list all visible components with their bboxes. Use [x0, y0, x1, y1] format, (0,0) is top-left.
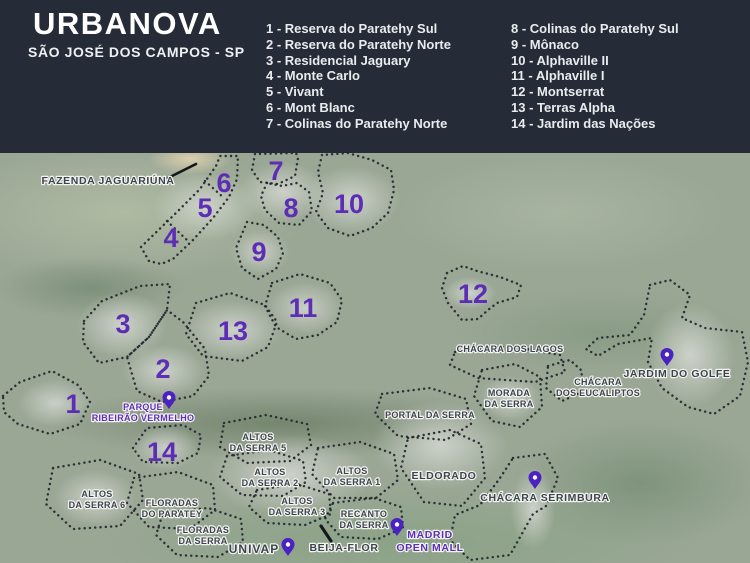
- region-number-9: 9: [251, 237, 266, 267]
- region-number-3: 3: [115, 309, 130, 339]
- label-altos-da-serra-3-line1: ALTOS: [281, 496, 312, 506]
- region-number-13: 13: [218, 316, 248, 346]
- label-altos-da-serra-1-line1: ALTOS: [336, 466, 367, 476]
- label-altos-da-serra-1-line2: DA SERRA 1: [324, 477, 381, 487]
- region-number-5: 5: [197, 193, 212, 223]
- label-altos-da-serra-2-line2: DA SERRA 2: [242, 478, 299, 488]
- label-univap: UNIVAP: [229, 542, 279, 556]
- region-number-7: 7: [268, 156, 283, 186]
- label-altos-da-serra-6-line2: DA SERRA 6: [69, 500, 126, 510]
- label-floradas-da-serra-line1: FLORADAS: [177, 525, 229, 535]
- label-altos-da-serra-2-line1: ALTOS: [254, 467, 285, 477]
- region-number-12: 12: [458, 279, 488, 309]
- region-outlines: [3, 153, 748, 560]
- label-altos-da-serra-3-line2: DA SERRA 3: [269, 507, 326, 517]
- map-labels: FAZENDA JAGUARIÚNA CHÁCARA DOS LAGOS MOR…: [42, 174, 731, 556]
- region-number-11: 11: [289, 293, 318, 323]
- region-number-10: 10: [334, 189, 364, 219]
- label-beija-flor: BEIJA-FLOR: [310, 542, 379, 554]
- label-recanto-da-serra-line2: DA SERRA: [339, 520, 388, 530]
- region-number-8: 8: [283, 193, 298, 223]
- label-jardim-do-golfe: JARDIM DO GOLFE: [623, 368, 730, 380]
- label-floradas-da-serra-line2: DA SERRA: [178, 536, 227, 546]
- region-number-14: 14: [147, 437, 177, 467]
- label-morada-da-serra-line2: DA SERRA: [484, 399, 533, 409]
- label-floradas-do-paratey-line2: DO PARATEY: [142, 509, 203, 519]
- pin-chacara-serimbura: [529, 471, 542, 489]
- map-annotations-layer: FAZENDA JAGUARIÚNA CHÁCARA DOS LAGOS MOR…: [0, 0, 750, 563]
- label-altos-da-serra-5-line1: ALTOS: [242, 432, 273, 442]
- label-chacara-dos-lagos: CHÁCARA DOS LAGOS: [457, 344, 564, 354]
- label-parque-ribeirao-vermelho-line2: RIBEIRÃO VERMELHO: [92, 413, 195, 423]
- beija-flor-pointer-line: [321, 526, 331, 541]
- label-morada-da-serra-line1: MORADA: [488, 388, 530, 398]
- region-number-1: 1: [65, 389, 80, 419]
- pin-parque-ribeirao-vermelho: [163, 391, 176, 409]
- label-floradas-do-paratey-line1: FLORADAS: [146, 498, 198, 508]
- label-chacara-serimbura: CHÁCARA SERIMBURA: [480, 491, 609, 504]
- label-fazenda-jaguariuna: FAZENDA JAGUARIÚNA: [42, 174, 175, 187]
- pin-jardim-do-golfe: [661, 348, 674, 366]
- label-parque-ribeirao-vermelho-line1: PARQUE: [123, 402, 163, 412]
- region-number-2: 2: [155, 354, 170, 384]
- label-eldorado: ELDORADO: [412, 470, 477, 482]
- region-number-6: 6: [216, 168, 231, 198]
- region-outline-eldorado: [401, 430, 485, 506]
- region-number-4: 4: [163, 223, 178, 253]
- label-altos-da-serra-6-line1: ALTOS: [81, 489, 112, 499]
- label-recanto-da-serra-line1: RECANTO: [341, 509, 387, 519]
- label-altos-da-serra-5-line2: DA SERRA 5: [230, 443, 287, 453]
- label-portal-da-serra: PORTAL DA SERRA: [385, 410, 475, 420]
- label-chacara-dos-eucaliptos-line2: DOS EUCALIPTOS: [556, 388, 640, 398]
- label-madrid-open-mall-line2: OPEN MALL: [396, 542, 463, 554]
- pin-univap: [282, 538, 295, 556]
- pin-madrid-open-mall: [391, 518, 404, 536]
- label-madrid-open-mall-line1: MADRID: [407, 529, 453, 541]
- label-chacara-dos-eucaliptos-line1: CHÁCARA: [574, 377, 622, 387]
